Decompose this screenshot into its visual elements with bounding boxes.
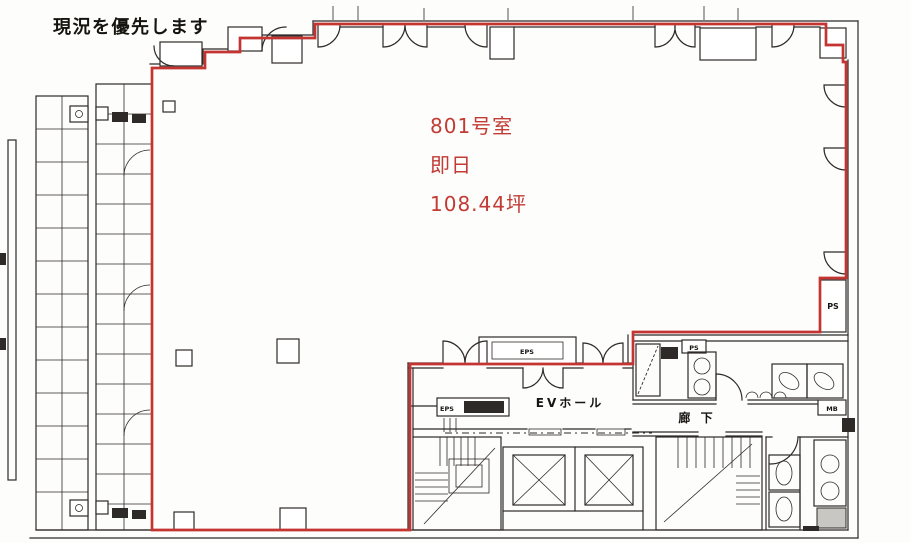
ps-shaft-right: PS [820, 280, 846, 332]
unit-boundary [152, 24, 846, 530]
stairwell-right [656, 437, 762, 530]
area-label: 108.44坪 [430, 192, 527, 216]
dimension-ticks [333, 6, 738, 20]
eps-shaft: EPS [479, 337, 576, 364]
ps-small-label: PS [689, 344, 699, 352]
corridor-label: 廊 下 [678, 410, 715, 425]
eps-label: EPS [520, 348, 534, 356]
ev-hall-label: EVホール [536, 396, 605, 410]
availability-label: 即日 [430, 153, 472, 177]
restroom-women [766, 437, 848, 531]
eps-panel-label: EPS [440, 405, 454, 413]
stairwell-left [413, 437, 501, 530]
note-label: 現況を優先します [53, 16, 209, 38]
unit-info: 801号室 即日 108.44坪 [430, 114, 527, 216]
floor-plan-drawing: EPS EPS EVホール 廊 下 [0, 0, 911, 543]
restroom-men: PS MB [636, 340, 855, 432]
ps-right-label: PS [827, 302, 839, 311]
floor-plan-page: EPS EPS EVホール 廊 下 [0, 0, 911, 543]
balcony-grid [0, 84, 152, 530]
interior-columns [174, 339, 306, 530]
equipment-boxes [70, 101, 175, 519]
room-number-label: 801号室 [430, 114, 513, 138]
facade-doors [154, 25, 846, 66]
right-wall-doors [824, 85, 846, 274]
elevator-shafts [503, 429, 643, 530]
equipment-panel: EPS [410, 398, 509, 432]
mb-label: MB [826, 405, 837, 413]
